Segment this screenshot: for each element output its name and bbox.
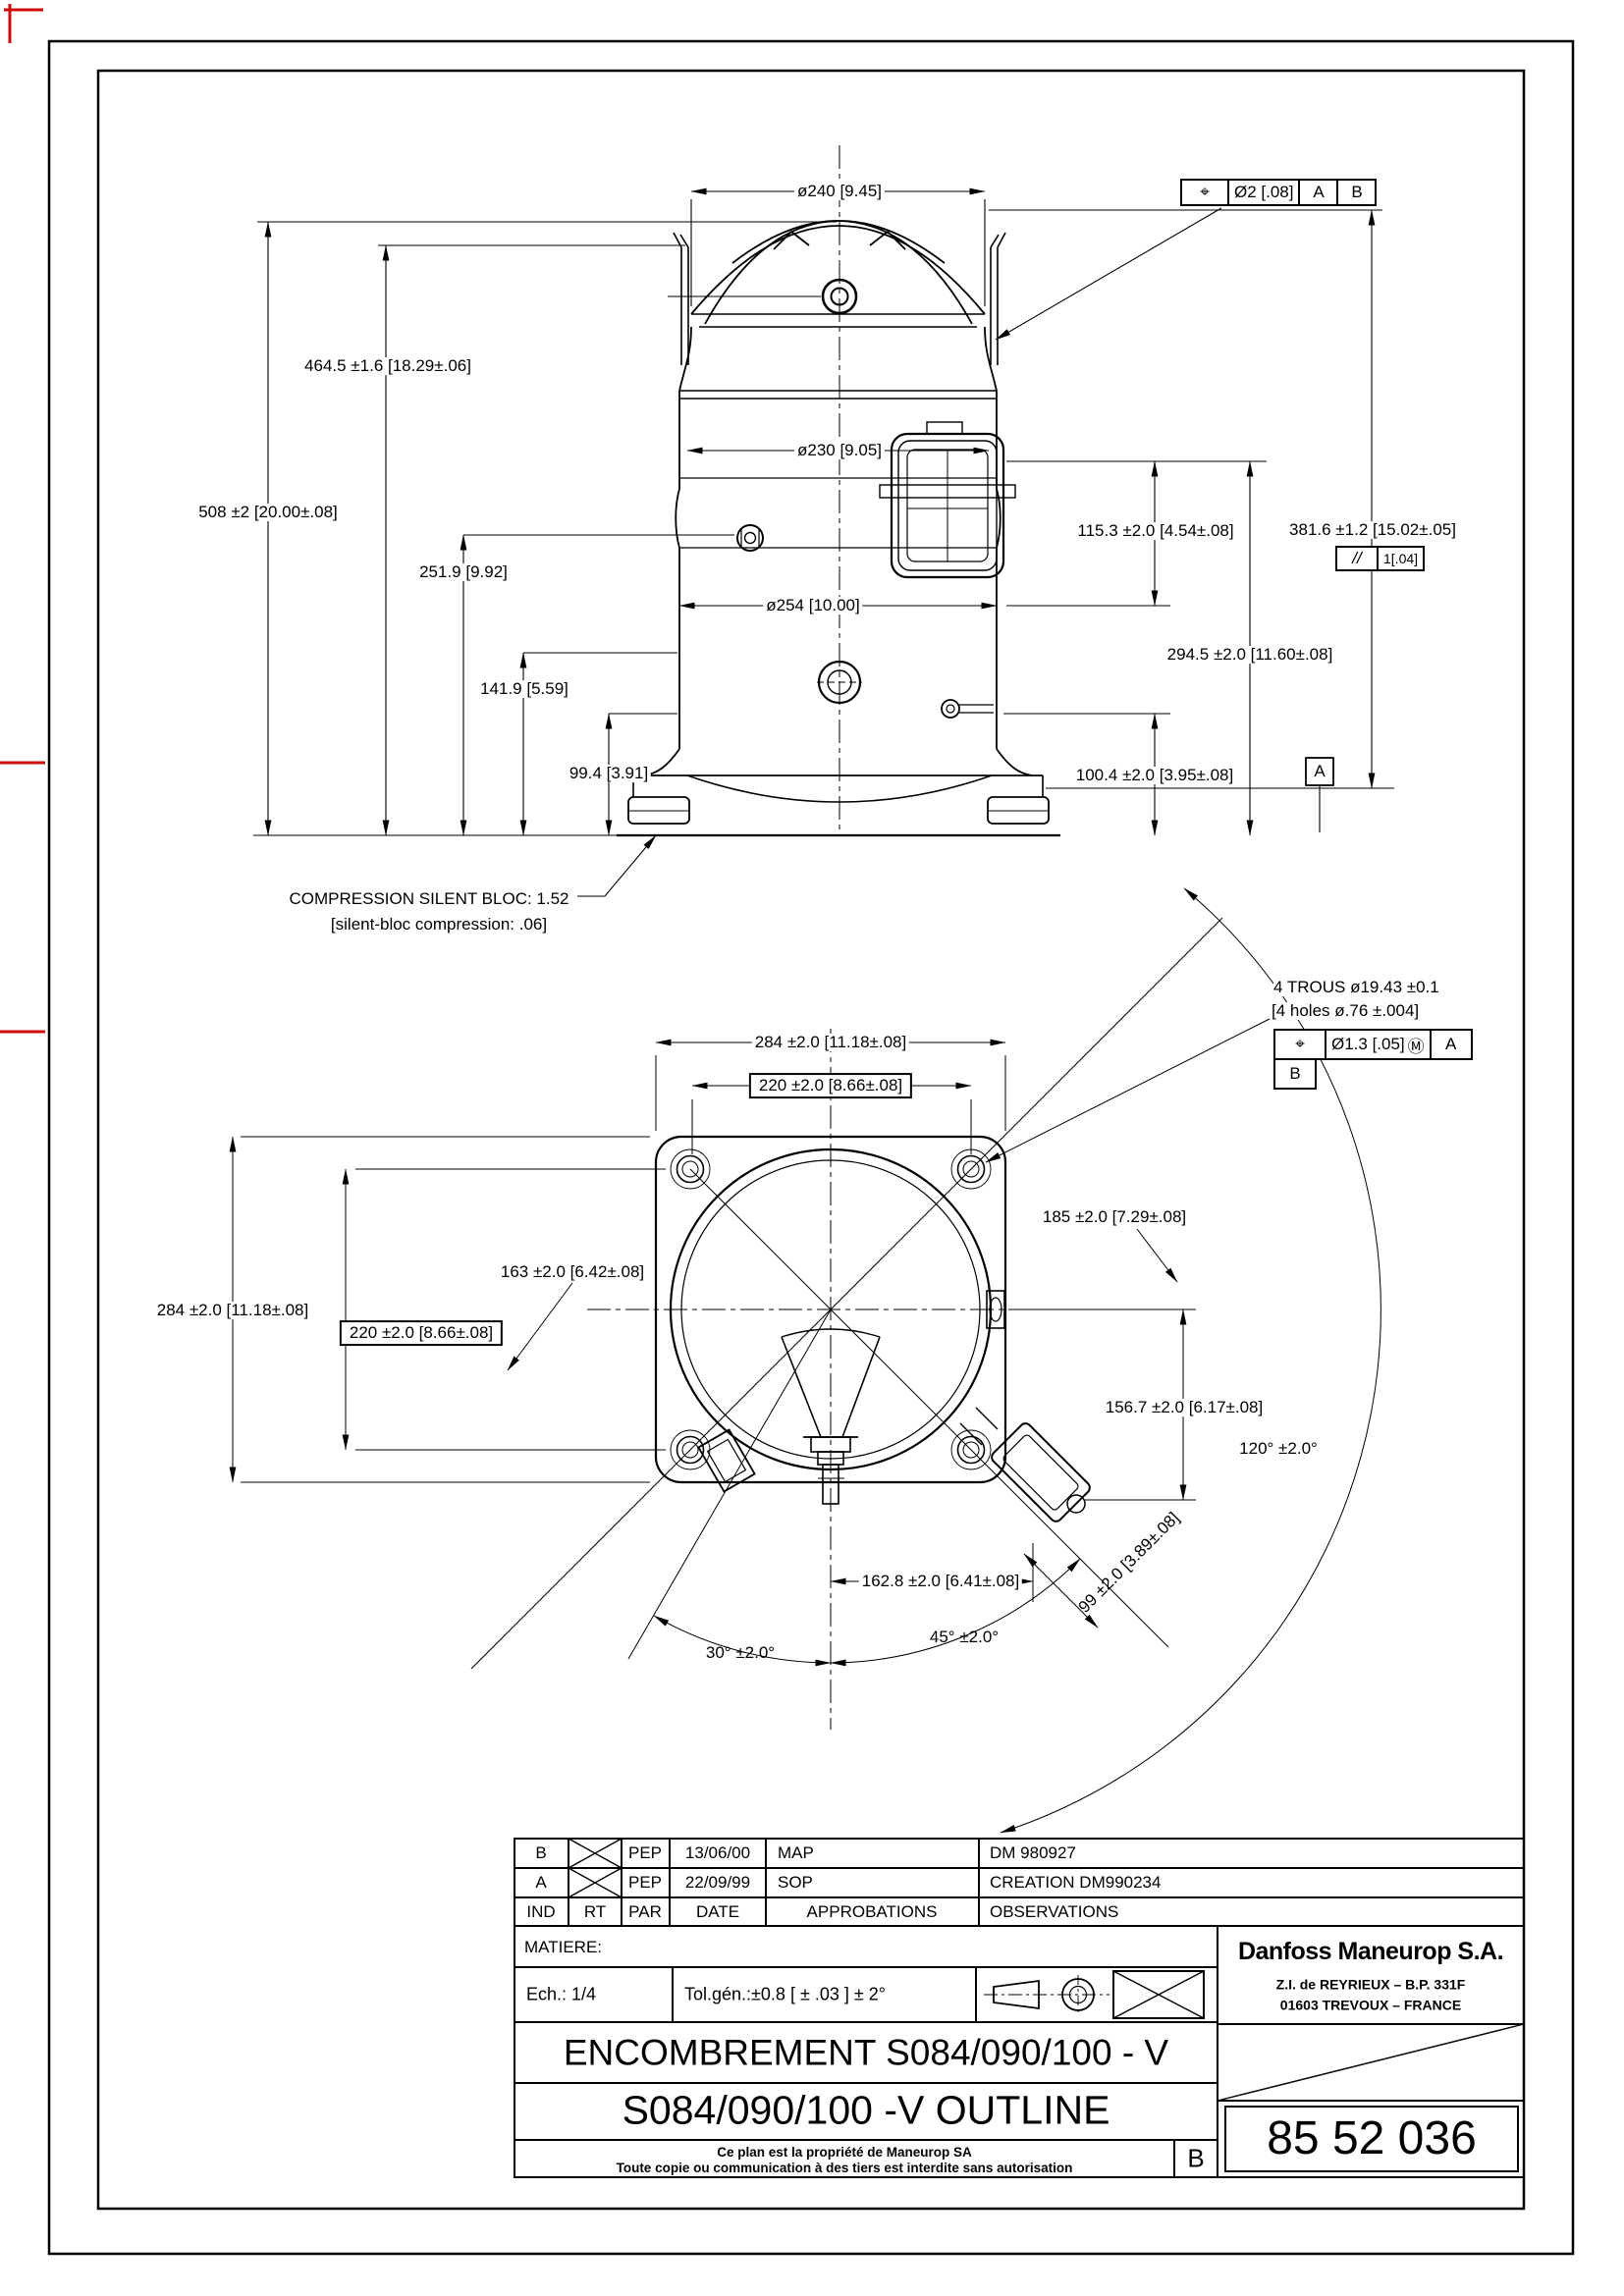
rev-row-par: PEP [625, 1844, 665, 1862]
position-datum-b: B [1273, 1058, 1317, 1090]
dim-156-label: 156.7 ±2.0 [6.17±.08] [1103, 1399, 1266, 1416]
registration-marks [0, 4, 45, 1032]
position-value: Ø1.3 [.05] [1331, 1035, 1405, 1054]
dim-464-label: 464.5 ±1.6 [18.29±.06] [301, 357, 474, 375]
parallelism-frame: // 1[.04] [1335, 546, 1425, 571]
property-note-line2: Toute copie ou communication à des tiers… [614, 2162, 1076, 2175]
position-datum-b: B [1336, 179, 1377, 206]
property-note-line1: Ce plan est la propriété de Maneurop SA [714, 2146, 975, 2160]
holes-note-fr: 4 TROUS ø19.43 ±0.1 [1273, 979, 1439, 996]
dim-284-top-label: 284 ±2.0 [11.18±.08] [752, 1034, 909, 1051]
dim-162-label: 162.8 ±2.0 [6.41±.08] [859, 1573, 1022, 1590]
dim-185-label: 185 ±2.0 [7.29±.08] [1040, 1208, 1189, 1226]
dim-115-label: 115.3 ±2.0 [4.54±.08] [1074, 522, 1236, 540]
header-rt: RT [581, 1903, 609, 1921]
dim-dia240-label: ø240 [9.45] [794, 183, 885, 200]
bottom-view-outline [587, 1029, 1196, 1730]
company-address-line2: 01603 TREVOUX – FRANCE [1277, 1999, 1464, 2013]
angle-30-label: 30° ±2.0° [703, 1644, 778, 1662]
rev-row-ind: A [532, 1874, 549, 1892]
position-frame-top: ⌖ Ø2 [.08] A B [1180, 179, 1377, 206]
position-datum-a: A [1298, 179, 1338, 206]
dim-dia254-label: ø254 [10.00] [763, 597, 862, 614]
header-par: PAR [625, 1903, 665, 1921]
matiere-label: MATIERE: [524, 1939, 602, 1956]
header-approbations: APPROBATIONS [804, 1903, 941, 1921]
dim-99-label: 99.4 [3.91] [567, 765, 651, 782]
dim-381-label: 381.6 ±1.2 [15.02±.05] [1286, 521, 1459, 539]
position-datum-a: A [1430, 1029, 1473, 1060]
dim-251-label: 251.9 [9.92] [416, 563, 511, 581]
rev-row-approbation: MAP [778, 1844, 814, 1862]
header-observations: OBSERVATIONS [990, 1903, 1118, 1921]
silent-bloc-note-en: [silent-bloc compression: .06] [328, 916, 550, 934]
drawing-title-en: S084/090/100 -V OUTLINE [620, 2089, 1113, 2131]
rev-row-date: 22/09/99 [682, 1874, 753, 1892]
rev-row-par: PEP [625, 1874, 665, 1892]
tolerance-label: Tol.gén.:±0.8 [ ± .03 ] ± 2° [684, 1986, 886, 2004]
position-icon: ⌖ [1273, 1029, 1326, 1060]
drawing-number: 85 52 036 [1264, 2114, 1480, 2163]
silent-bloc-note-fr: COMPRESSION SILENT BLOC: 1.52 [287, 890, 572, 908]
dim-220-top-label: 220 ±2.0 [8.66±.08] [749, 1073, 912, 1098]
mmc-modifier-icon: Ⓜ [1408, 1033, 1425, 1057]
dim-dia230-label: ø230 [9.05] [794, 442, 885, 459]
front-view-outline [617, 145, 1060, 836]
holes-note-en: [4 holes ø.76 ±.004] [1272, 1002, 1419, 1020]
rev-row-ind: B [532, 1844, 549, 1862]
datum-a-label: A [1311, 763, 1327, 780]
position-frame-datum-b: B [1273, 1058, 1317, 1090]
drawing-sheet: ø240 [9.45] ø230 [9.05] ø254 [10.00] 508… [0, 0, 1624, 2296]
company-name: Danfoss Maneurop S.A. [1235, 1939, 1506, 1964]
dim-220-left-label: 220 ±2.0 [8.66±.08] [340, 1320, 503, 1346]
position-frame-bottom: ⌖ Ø1.3 [.05]Ⓜ A [1273, 1029, 1473, 1060]
dim-163-label: 163 ±2.0 [6.42±.08] [498, 1263, 647, 1281]
dim-508-label: 508 ±2 [20.00±.08] [195, 504, 341, 521]
rev-row-approbation: SOP [778, 1874, 813, 1892]
revision-letter: B [1184, 2145, 1207, 2171]
dim-284-left-label: 284 ±2.0 [11.18±.08] [154, 1302, 311, 1319]
position-tolerance: Ø1.3 [.05]Ⓜ [1325, 1029, 1432, 1060]
header-ind: IND [523, 1903, 558, 1921]
drawing-title-fr: ENCOMBREMENT S084/090/100 - V [561, 2035, 1171, 2073]
parallelism-tolerance: 1[.04] [1377, 546, 1425, 571]
rev-row-date: 13/06/00 [682, 1844, 753, 1862]
angle-45-label: 45° ±2.0° [927, 1629, 1001, 1646]
sheet-border [49, 41, 1573, 2254]
dim-294-label: 294.5 ±2.0 [11.60±.08] [1164, 646, 1336, 664]
company-address-line1: Z.I. de REYRIEUX – B.P. 331F [1273, 1978, 1469, 1993]
parallelism-icon: // [1335, 546, 1379, 571]
header-date: DATE [693, 1903, 742, 1921]
rev-row-observation: DM 980927 [990, 1844, 1076, 1862]
dim-141-label: 141.9 [5.59] [477, 680, 571, 698]
position-icon: ⌖ [1180, 179, 1229, 206]
scale-label: Ech.: 1/4 [526, 1986, 596, 2004]
dim-100-label: 100.4 ±2.0 [3.95±.08] [1073, 767, 1236, 784]
position-tolerance: Ø2 [.08] [1227, 179, 1300, 206]
rev-row-observation: CREATION DM990234 [990, 1874, 1161, 1892]
angle-120-label: 120° ±2.0° [1236, 1440, 1321, 1458]
bottom-view-dimensions [233, 888, 1380, 1833]
